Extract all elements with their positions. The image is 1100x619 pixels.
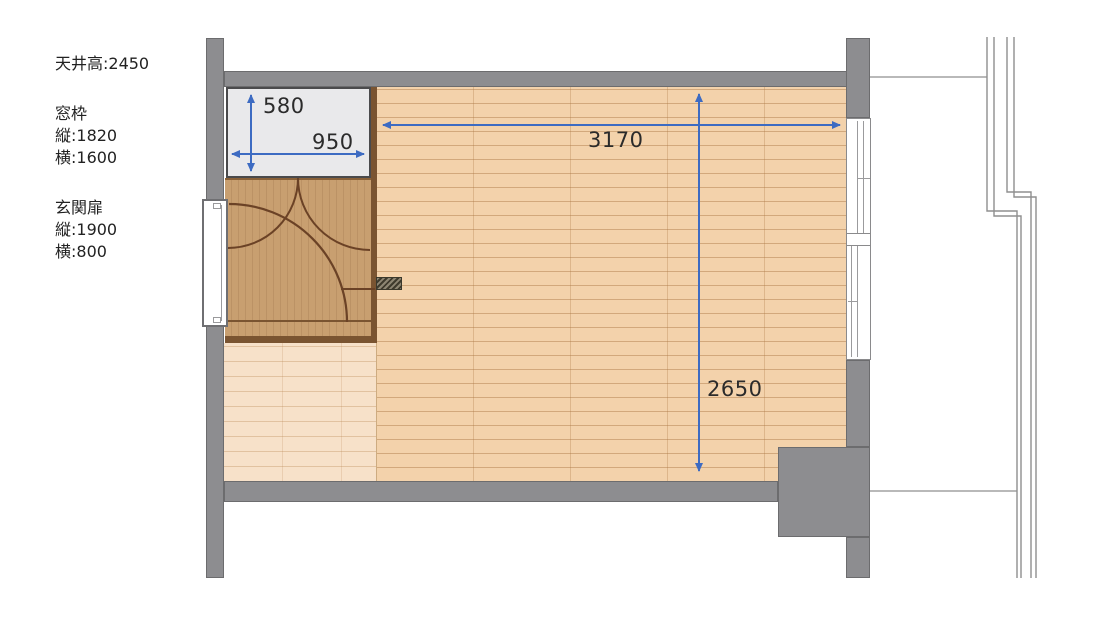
note-ceiling-height: 天井高:2450 <box>55 53 149 75</box>
window-meeting-rail <box>847 233 870 246</box>
dim-label-room-depth: 2650 <box>707 379 762 400</box>
entry-lower-floor <box>224 343 377 481</box>
window-sash-tick <box>857 178 870 179</box>
balcony-outline <box>994 37 1021 578</box>
balcony-outline <box>987 37 1017 578</box>
door-jamb-bottom <box>213 317 221 323</box>
right-window <box>846 118 871 360</box>
ceiling-height-text: 天井高:2450 <box>55 53 149 75</box>
dim-label-room-width: 3170 <box>588 130 643 151</box>
window-sash-line <box>863 121 864 233</box>
wall-bottom <box>224 481 778 502</box>
dim-label-closet-depth: 580 <box>263 96 305 117</box>
entrance-door-leaf-line <box>221 205 222 321</box>
genkan-step-edge <box>225 320 371 322</box>
note-entrance-door: 玄関扉 縦:1900 横:800 <box>55 197 117 263</box>
window-sash-tick <box>848 301 857 302</box>
door-jamb-top <box>213 203 221 209</box>
entrance-door-height: 縦:1900 <box>55 219 117 241</box>
window-frame-title: 窓枠 <box>55 103 117 125</box>
genkan-area <box>225 178 371 343</box>
balcony-outline <box>1007 37 1031 578</box>
wall-right-upper <box>846 38 870 118</box>
wall-right-mid <box>846 360 870 447</box>
floor-plan-canvas: 天井高:2450 窓枠 縦:1820 横:1600 玄関扉 縦:1900 横:8… <box>0 0 1100 619</box>
entrance-door-title: 玄関扉 <box>55 197 117 219</box>
entrance-door <box>202 199 228 327</box>
window-sash-line <box>857 121 858 233</box>
wall-top <box>224 71 847 87</box>
wall-right-lower <box>846 537 870 578</box>
window-sash-line <box>857 246 858 357</box>
window-frame-width: 横:1600 <box>55 147 117 169</box>
wall-stub-hatched <box>376 277 402 290</box>
dim-label-closet-width: 950 <box>312 132 354 153</box>
balcony-outline <box>1014 37 1036 578</box>
genkan-border-wall <box>371 87 377 343</box>
entrance-door-width: 横:800 <box>55 241 117 263</box>
corner-pillar-box <box>778 447 870 537</box>
window-frame-height: 縦:1820 <box>55 125 117 147</box>
note-window-frame: 窓枠 縦:1820 横:1600 <box>55 103 117 169</box>
